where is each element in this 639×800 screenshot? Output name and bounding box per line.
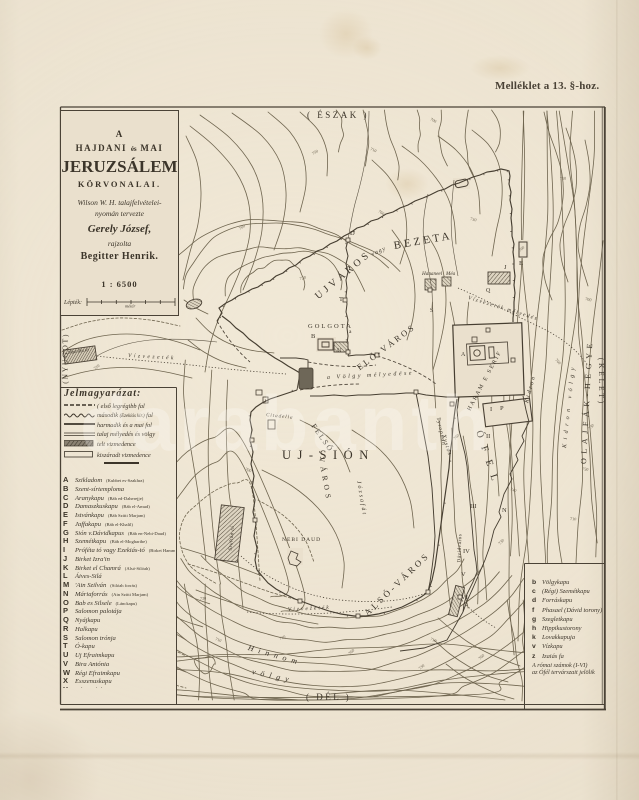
svg-text:720: 720	[93, 363, 101, 371]
svg-text:710: 710	[570, 516, 577, 522]
svg-text:700: 700	[430, 117, 438, 124]
svg-text:730: 730	[417, 663, 425, 671]
svg-text:710: 710	[279, 634, 287, 641]
svg-text:760: 760	[238, 223, 246, 231]
svg-text:730: 730	[470, 216, 477, 222]
svg-text:700: 700	[585, 296, 592, 302]
svg-text:Lépték:: Lépték:	[63, 300, 82, 306]
svg-text:760: 760	[477, 653, 485, 661]
svg-text:740: 740	[510, 486, 518, 493]
svg-text:710: 710	[560, 176, 567, 181]
svg-text:710: 710	[215, 636, 223, 643]
svg-text:710: 710	[370, 146, 378, 153]
svg-text:métér: métér	[125, 304, 135, 309]
svg-text:750: 750	[311, 148, 319, 156]
svg-text:730: 730	[497, 538, 505, 546]
svg-text:720: 720	[299, 275, 306, 281]
svg-text:760: 760	[554, 357, 562, 365]
svg-text:730: 730	[200, 596, 207, 601]
